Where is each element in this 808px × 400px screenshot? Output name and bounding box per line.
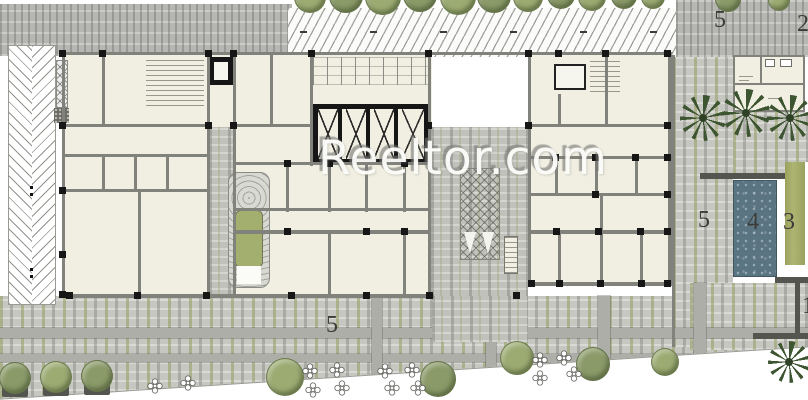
labels-layer: 5254351 xyxy=(0,0,808,400)
area-number-label: 5 xyxy=(698,208,710,232)
area-number-label: 5 xyxy=(714,8,726,32)
site-plan: 5254351 Reeltor.com xyxy=(0,0,808,400)
area-number-label: 2 xyxy=(797,12,808,36)
area-number-label: 3 xyxy=(783,210,795,234)
area-number-label: 1 xyxy=(802,294,808,318)
area-number-label: 5 xyxy=(326,313,338,337)
watermark: Reeltor.com xyxy=(318,131,608,186)
area-number-label: 4 xyxy=(747,210,759,234)
